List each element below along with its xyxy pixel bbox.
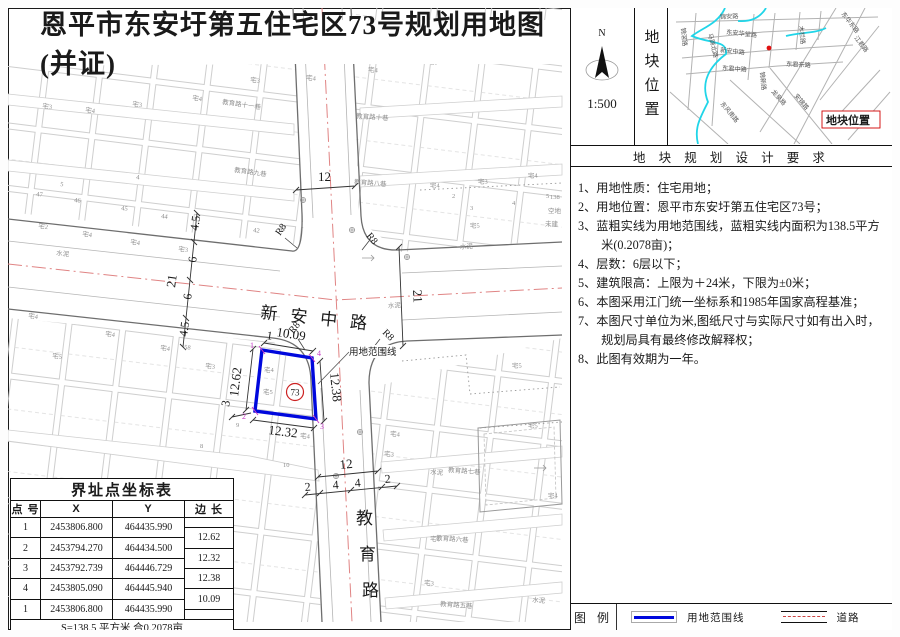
map-texture-label: 45 xyxy=(121,205,128,213)
map-texture-label: 宅4 xyxy=(264,365,275,374)
plot-corner-3: 3 xyxy=(320,422,324,431)
requirement-item: 1、用地性质：住宅用地； xyxy=(578,179,886,198)
edge-length: 12.32 xyxy=(185,549,233,569)
map-texture-label: 空地 xyxy=(548,206,562,215)
boundary-coordinate-table: 界址点坐标表 点 号 X Y 边 长 1 2453806.800 464435.… xyxy=(10,478,234,630)
dim-bottom-seg2: 4 xyxy=(332,478,339,492)
point-id: 3 xyxy=(11,559,41,579)
radius-label-se: R8 xyxy=(380,327,396,343)
point-y: 464434.500 xyxy=(113,538,185,558)
map-texture-label: 宅4 xyxy=(82,229,94,239)
boundary-line-symbol xyxy=(631,611,677,623)
requirement-item: 6、本图采用江门统一坐标系和1985年国家高程基准； xyxy=(578,293,886,312)
map-texture-label: 宅5 xyxy=(263,387,273,396)
minimap-street-label: 木栏路 xyxy=(797,25,807,45)
legend-boundary-label: 用地范围线 xyxy=(687,610,745,625)
point-x: 2453794.270 xyxy=(41,538,113,558)
dim-bottom-seg1: 2 xyxy=(304,480,311,494)
map-texture-label: 3 xyxy=(470,205,473,212)
plot-corner-4: 4 xyxy=(317,349,321,358)
road-name-jiaoyulu-char2: 育 xyxy=(359,545,376,564)
legend-title: 图 例 xyxy=(571,604,617,630)
requirement-item: 2、用地位置：恩平市东安圩第五住宅区73号； xyxy=(578,198,886,217)
dim-left-seg1: 4.5 xyxy=(187,215,203,232)
requirement-item: 5、建筑限高：上限为＋24米，下限为±0米； xyxy=(578,274,886,293)
point-y: 464446.729 xyxy=(113,559,185,579)
point-x: 2453806.800 xyxy=(41,600,113,620)
col-header-x: X xyxy=(41,501,113,518)
map-texture-label: 41 xyxy=(279,225,286,233)
plot-number: 73 xyxy=(291,388,301,398)
map-texture-label: 42 xyxy=(253,227,260,235)
point-y: 464435.990 xyxy=(113,600,185,620)
map-texture-label: 138 xyxy=(550,194,560,201)
requirement-item: 4、层数：6层以下； xyxy=(578,255,886,274)
dim-bottom-seg4: 2 xyxy=(384,472,391,486)
requirement-item: 8、此图有效期为一年。 xyxy=(578,350,886,369)
minimap-street-label: 锦滘路 xyxy=(679,27,689,47)
point-id: 2 xyxy=(11,538,41,558)
legend-road-label: 道路 xyxy=(837,610,860,625)
map-texture-label: 水泥 xyxy=(388,300,402,310)
dim-left-seg2: 6 xyxy=(185,256,200,264)
planning-map-sheet: 4.5 6 6 4.5 21 21 12 12 2 4 4 2 10.09 1 … xyxy=(0,0,900,637)
requirement-item: 3、蓝粗实线为用地范围线，蓝粗实线内面积为138.5平方米(0.2078亩)； xyxy=(578,217,886,255)
point-x: 2453805.090 xyxy=(41,579,113,599)
map-texture-label: 宅5 xyxy=(528,421,538,430)
minimap-street-label: 锦新路 xyxy=(758,71,768,91)
plot-corner-1: 1 xyxy=(250,341,254,350)
map-texture-label: 10 xyxy=(283,462,290,469)
north-letter: N xyxy=(598,28,605,39)
plot-location-vertical-label: 地块位置 xyxy=(641,29,662,125)
dim-right-total: 21 xyxy=(410,289,426,303)
minimap-street-label: 锦安路 xyxy=(720,12,740,21)
dim-bottom-seg3: 4 xyxy=(354,476,361,490)
dim-plot-right: 12.38 xyxy=(327,372,345,403)
map-texture-label: 未建 xyxy=(545,219,559,228)
dim-tick-one: 1 xyxy=(266,328,274,343)
dim-left-seg3: 6 xyxy=(180,293,195,301)
plot-location-vertical-cell: 地块位置 xyxy=(635,8,668,145)
coordinate-table-title: 界址点坐标表 xyxy=(11,479,233,501)
info-panel: N 1:500 地块位置 xyxy=(570,8,892,630)
minimap-street-label: 东君中路 xyxy=(722,64,748,74)
map-texture-label: 9 xyxy=(236,422,239,429)
road-name-jiaoyulu-char3: 路 xyxy=(362,581,379,600)
scale-label: 1:500 xyxy=(587,96,617,111)
dim-left-seg4: 4.5 xyxy=(176,321,192,338)
point-id: 1 xyxy=(11,518,41,538)
col-header-edge: 边 长 xyxy=(185,501,233,518)
north-arrow-icon: N 1:500 xyxy=(571,8,633,144)
road-symbol xyxy=(781,611,827,623)
map-texture-label: 宅5 xyxy=(512,361,522,370)
requirements-header: 地 块 规 划 设 计 要 求 xyxy=(571,146,892,167)
main-map: 4.5 6 6 4.5 21 21 12 12 2 4 4 2 10.09 1 … xyxy=(8,8,570,630)
minimap-canvas: 锦安路东安华堂路新安中路东君中路东君东路木栏路东华东路江君路锦滘路马蹄北路锦新路… xyxy=(668,8,892,144)
point-id: 4 xyxy=(11,579,41,599)
minimap-street-label: 东君东路 xyxy=(786,60,812,69)
minimap-street-label: 江君路 xyxy=(852,34,870,54)
requirements-list: 1、用地性质：住宅用地；2、用地位置：恩平市东安圩第五住宅区73号；3、蓝粗实线… xyxy=(571,171,892,601)
edge-length: 12.38 xyxy=(185,569,233,589)
point-y: 464435.990 xyxy=(113,518,185,538)
edge-spacer xyxy=(185,518,233,528)
map-texture-label: 宅4 xyxy=(528,171,539,180)
point-x: 2453806.800 xyxy=(41,518,113,538)
map-texture-label: 5 xyxy=(546,193,549,200)
plot-location-callout: 地块位置 xyxy=(826,113,870,127)
point-id: 1 xyxy=(11,600,41,620)
minimap-street-label: 东风南路 xyxy=(718,100,741,125)
map-texture-label: 58 xyxy=(184,344,191,352)
map-texture-label: 宅4 xyxy=(430,181,441,190)
map-texture-label: 2 xyxy=(452,193,455,200)
map-texture-label: 8 xyxy=(200,443,203,450)
requirement-item: 7、本图尺寸单位为米,图纸尺寸与实际尺寸如有出入时，规划局具有最终修改解释权； xyxy=(578,312,886,350)
legend-item-road: 道路 xyxy=(759,610,860,625)
map-texture-label: 宅3 xyxy=(178,244,189,254)
edge-length: 10.09 xyxy=(185,589,233,609)
minimap-street-label: 东华东路 xyxy=(839,10,861,35)
location-minimap: 锦安路东安华堂路新安中路东君中路东君东路木栏路东华东路江君路锦滘路马蹄北路锦新路… xyxy=(668,8,892,145)
legend: 图 例 用地范围线 道路 xyxy=(571,603,892,630)
road-name-jiaoyulu-char1: 教 xyxy=(356,509,373,528)
plot-corner-2: 2 xyxy=(242,412,246,421)
map-texture-label: 宅4 xyxy=(548,491,559,500)
dim-road-top: 12 xyxy=(318,169,331,184)
dim-left-total: 21 xyxy=(163,273,180,288)
north-arrow-cell: N 1:500 xyxy=(571,8,635,145)
minimap-street-label: 东安华堂路 xyxy=(726,28,758,39)
edge-spacer xyxy=(185,610,233,620)
point-x: 2453792.739 xyxy=(41,559,113,579)
map-texture-label: 宅4 xyxy=(130,237,142,247)
plot-location-marker-dot xyxy=(767,46,772,51)
panel-top-row: N 1:500 地块位置 xyxy=(571,8,892,146)
map-texture-label: 水泥 xyxy=(56,248,70,259)
legend-item-boundary: 用地范围线 xyxy=(631,610,745,625)
minimap-street-label: 安锦路 xyxy=(792,92,811,112)
edge-length: 12.62 xyxy=(185,528,233,548)
map-texture-label: 宅3 xyxy=(478,177,488,186)
area-summary: S=138.5 平方米 合0.2078亩 xyxy=(11,620,233,630)
sheet-title: 恩平市东安圩第五住宅区73号规划用地图(并证) xyxy=(26,20,566,64)
dim-road-bottom-total: 12 xyxy=(339,456,353,472)
col-header-y: Y xyxy=(113,501,185,518)
map-texture-label: 宅5 xyxy=(470,221,480,230)
boundary-line-label: 用地范围线 xyxy=(349,346,397,358)
col-header-point: 点 号 xyxy=(11,501,41,518)
point-y: 464445.940 xyxy=(113,579,185,599)
